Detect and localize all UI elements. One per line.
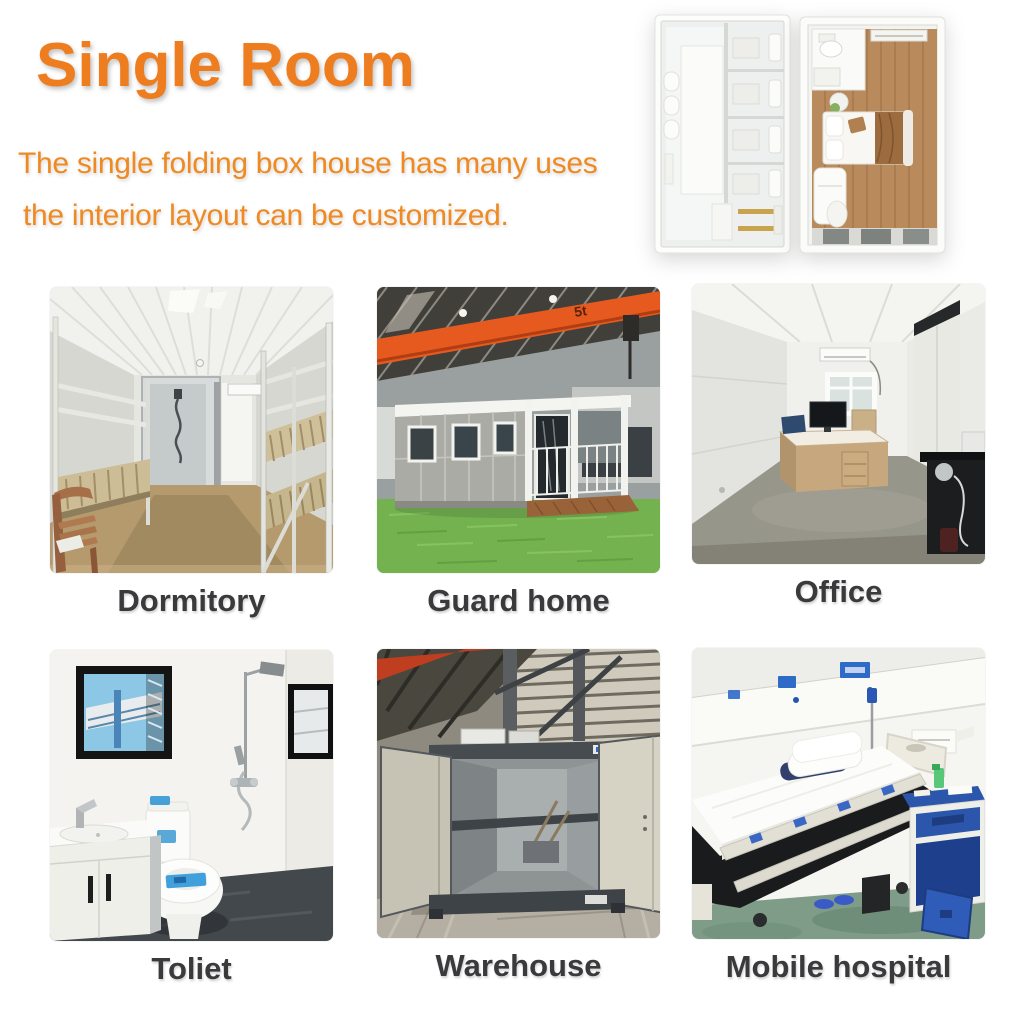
office-photo-frame [692,284,985,564]
gallery-item-dormitory: Dormitory [50,287,333,619]
warehouse-photo-frame [377,649,660,938]
floor-plan-bedroom-unit [799,16,946,254]
gallery-item-mobile-hospital: Mobile hospital [692,648,985,985]
gallery-item-guard-home: 5t [377,287,660,619]
subtitle-line-2: the interior layout can be customized. [18,190,678,242]
page-title: Single Room [36,30,415,101]
bathroom-unit-floor-plan-image [654,14,791,254]
toliet-photo-frame [50,650,333,941]
gallery-label-office: Office [692,574,985,610]
gallery-item-warehouse: Warehouse [377,649,660,984]
subtitle-line-1: The single folding box house has many us… [18,147,597,180]
dormitory-photo-frame [50,287,333,573]
gallery-label-warehouse: Warehouse [377,948,660,984]
page-subtitle: The single folding box house has many us… [18,138,678,242]
gallery-item-office: Office [692,284,985,610]
gallery-item-toliet: Toliet [50,650,333,987]
warehouse-photo [377,649,660,938]
office-photo [692,284,985,564]
mobile-hospital-photo-frame [692,648,985,939]
mobile-hospital-photo [692,648,985,939]
page: Single Room The single folding box house… [0,0,1020,1020]
gallery-label-mobile-hospital: Mobile hospital [692,949,985,985]
guard-home-photo-frame: 5t [377,287,660,573]
dormitory-photo [50,287,333,573]
floor-plan-bathroom-unit [654,14,791,254]
guard-home-photo: 5t [377,287,660,573]
gallery-label-toliet: Toliet [50,951,333,987]
gallery-label-guard-home: Guard home [377,583,660,619]
bedroom-unit-floor-plan-image [799,16,946,254]
toliet-photo [50,650,333,941]
gallery-label-dormitory: Dormitory [50,583,333,619]
